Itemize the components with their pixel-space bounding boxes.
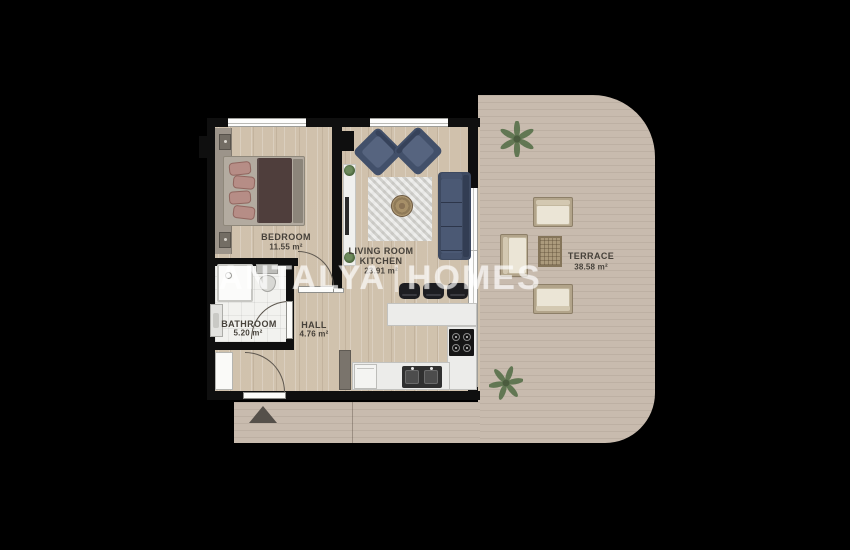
outdoor-loveseat <box>533 197 573 227</box>
hall-area-label: 4.76 m² <box>300 330 329 339</box>
deck-seam-line <box>352 402 353 443</box>
potted-plant-icon <box>344 165 355 176</box>
pillow <box>228 161 251 176</box>
wall-bedroom-living-divider <box>332 127 342 289</box>
entrance-door-leaf <box>243 392 286 399</box>
outdoor-loveseat <box>500 234 528 277</box>
shower-tray <box>217 264 253 302</box>
hall-label: HALL <box>301 320 327 330</box>
bedroom-window <box>228 118 306 127</box>
double-bed <box>223 156 305 226</box>
kitchen-island-counter <box>387 303 477 326</box>
sink-basin <box>424 370 438 384</box>
stove-cooktop <box>449 329 474 356</box>
bedroom-area-label: 11.55 m² <box>269 243 302 252</box>
bed-foot-bench <box>293 159 303 223</box>
terrace-area-label: 38.58 m² <box>574 263 608 272</box>
rattan-table <box>538 236 562 267</box>
bathroom-area-label: 5.20 m² <box>234 329 263 338</box>
bedside-lamp-icon <box>219 134 231 150</box>
outdoor-seat-cushion <box>508 237 527 274</box>
outdoor-seat-cushion <box>536 288 570 308</box>
utility-shaft <box>215 352 233 390</box>
entrance-arrow-icon <box>249 406 277 423</box>
wall-left-notch <box>199 136 207 158</box>
terrace-label: TERRACE <box>568 251 614 261</box>
bar-stool <box>423 283 444 299</box>
pillow <box>229 190 252 205</box>
sofa <box>438 172 471 260</box>
bedroom-door-leaf <box>298 286 334 293</box>
burner-icon <box>452 333 460 341</box>
pillow <box>232 175 255 190</box>
burner-icon <box>463 333 471 341</box>
outdoor-loveseat <box>533 284 573 314</box>
bedroom-label: BEDROOM <box>261 232 311 242</box>
terrace-plant-icon <box>489 366 523 400</box>
terrace-plant-icon <box>499 121 535 157</box>
bedside-lamp-icon <box>219 232 231 248</box>
bathroom-door-leaf <box>286 301 293 339</box>
burner-icon <box>463 344 471 352</box>
sofa-seat-cushions <box>441 179 462 253</box>
burner-icon <box>452 344 460 352</box>
toilet-tank <box>256 264 278 274</box>
outdoor-seat-cushion <box>536 205 570 225</box>
armchair-cushion <box>361 135 395 169</box>
window-mullion <box>228 123 306 124</box>
wall-divider-notch <box>342 131 354 151</box>
kitchen-sink <box>402 366 442 388</box>
bar-stool <box>447 283 468 299</box>
faucet-icon <box>430 367 433 370</box>
bathroom-label: BATHROOM <box>221 319 277 329</box>
window-mullion <box>370 123 448 124</box>
sofa-backrest <box>463 175 469 257</box>
pillow <box>232 205 255 221</box>
floor-plan-canvas: BEDROOM 11.55 m² LIVING ROOM KITCHEN 23.… <box>0 0 850 550</box>
dishwasher <box>354 364 377 389</box>
living-area-label: 23.91 m² <box>364 267 398 276</box>
outdoor-seat-back <box>536 306 570 311</box>
bar-stool <box>399 283 420 299</box>
faucet-icon <box>411 367 414 370</box>
wall-bathroom-bottom <box>207 342 294 350</box>
living-window <box>370 118 448 127</box>
living-room-label: LIVING ROOM <box>349 246 414 256</box>
bed-duvet <box>257 158 292 223</box>
sink-basin <box>405 370 419 384</box>
hall-closet <box>339 350 351 390</box>
kitchen-label: KITCHEN <box>360 256 403 266</box>
sofa-armrest <box>441 253 462 259</box>
tv-icon <box>345 197 349 235</box>
round-coffee-table <box>391 195 413 217</box>
